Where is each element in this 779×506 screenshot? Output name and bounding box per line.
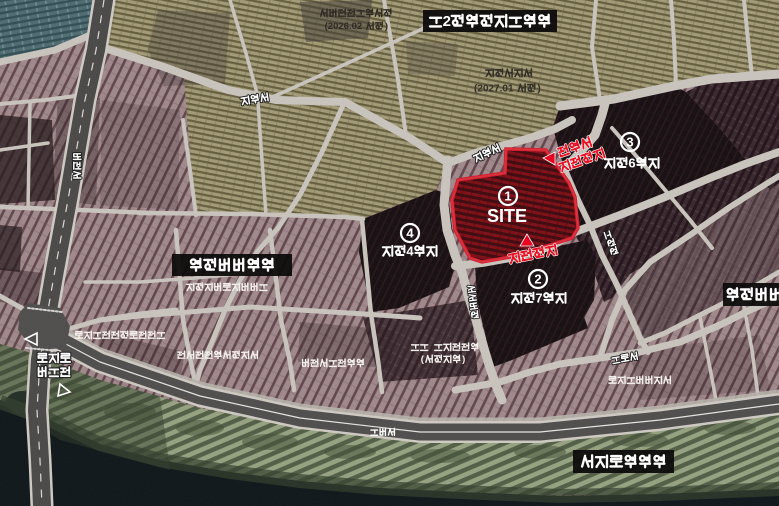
svg-text:3: 3 (626, 135, 633, 150)
svg-text:7: 7 (535, 290, 542, 305)
svg-text:4: 4 (406, 243, 414, 258)
svg-text:(2026.02: (2026.02 (325, 21, 363, 32)
svg-text:): ) (385, 21, 388, 32)
svg-text:6: 6 (628, 155, 635, 170)
svg-text:(2027.01: (2027.01 (474, 83, 514, 94)
svg-text:): ) (537, 83, 540, 94)
svg-text:2: 2 (443, 13, 451, 30)
svg-text:4: 4 (406, 226, 414, 241)
svg-text:2: 2 (534, 272, 541, 287)
svg-text:SITE: SITE (487, 206, 527, 226)
svg-text:): ) (462, 354, 465, 365)
svg-text:1: 1 (504, 189, 511, 204)
